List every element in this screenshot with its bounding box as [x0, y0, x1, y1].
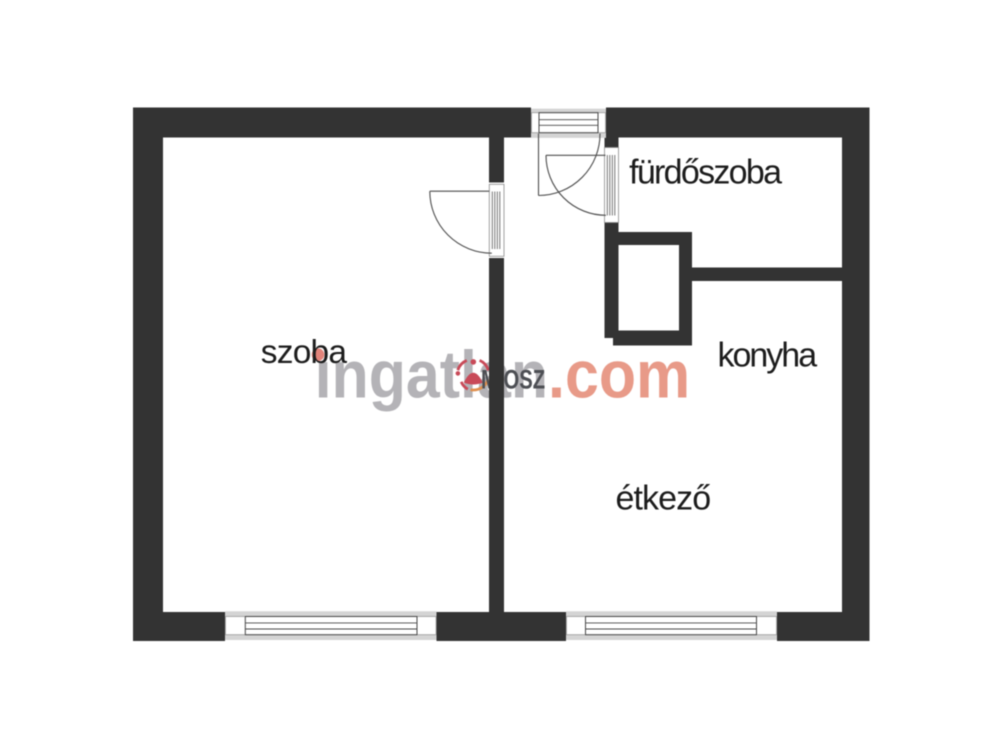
svg-text:konyha: konyha	[717, 337, 817, 375]
svg-text:szoba: szoba	[261, 334, 348, 371]
svg-text:fürdőszoba: fürdőszoba	[629, 154, 782, 192]
svg-text:étkező: étkező	[616, 480, 711, 518]
